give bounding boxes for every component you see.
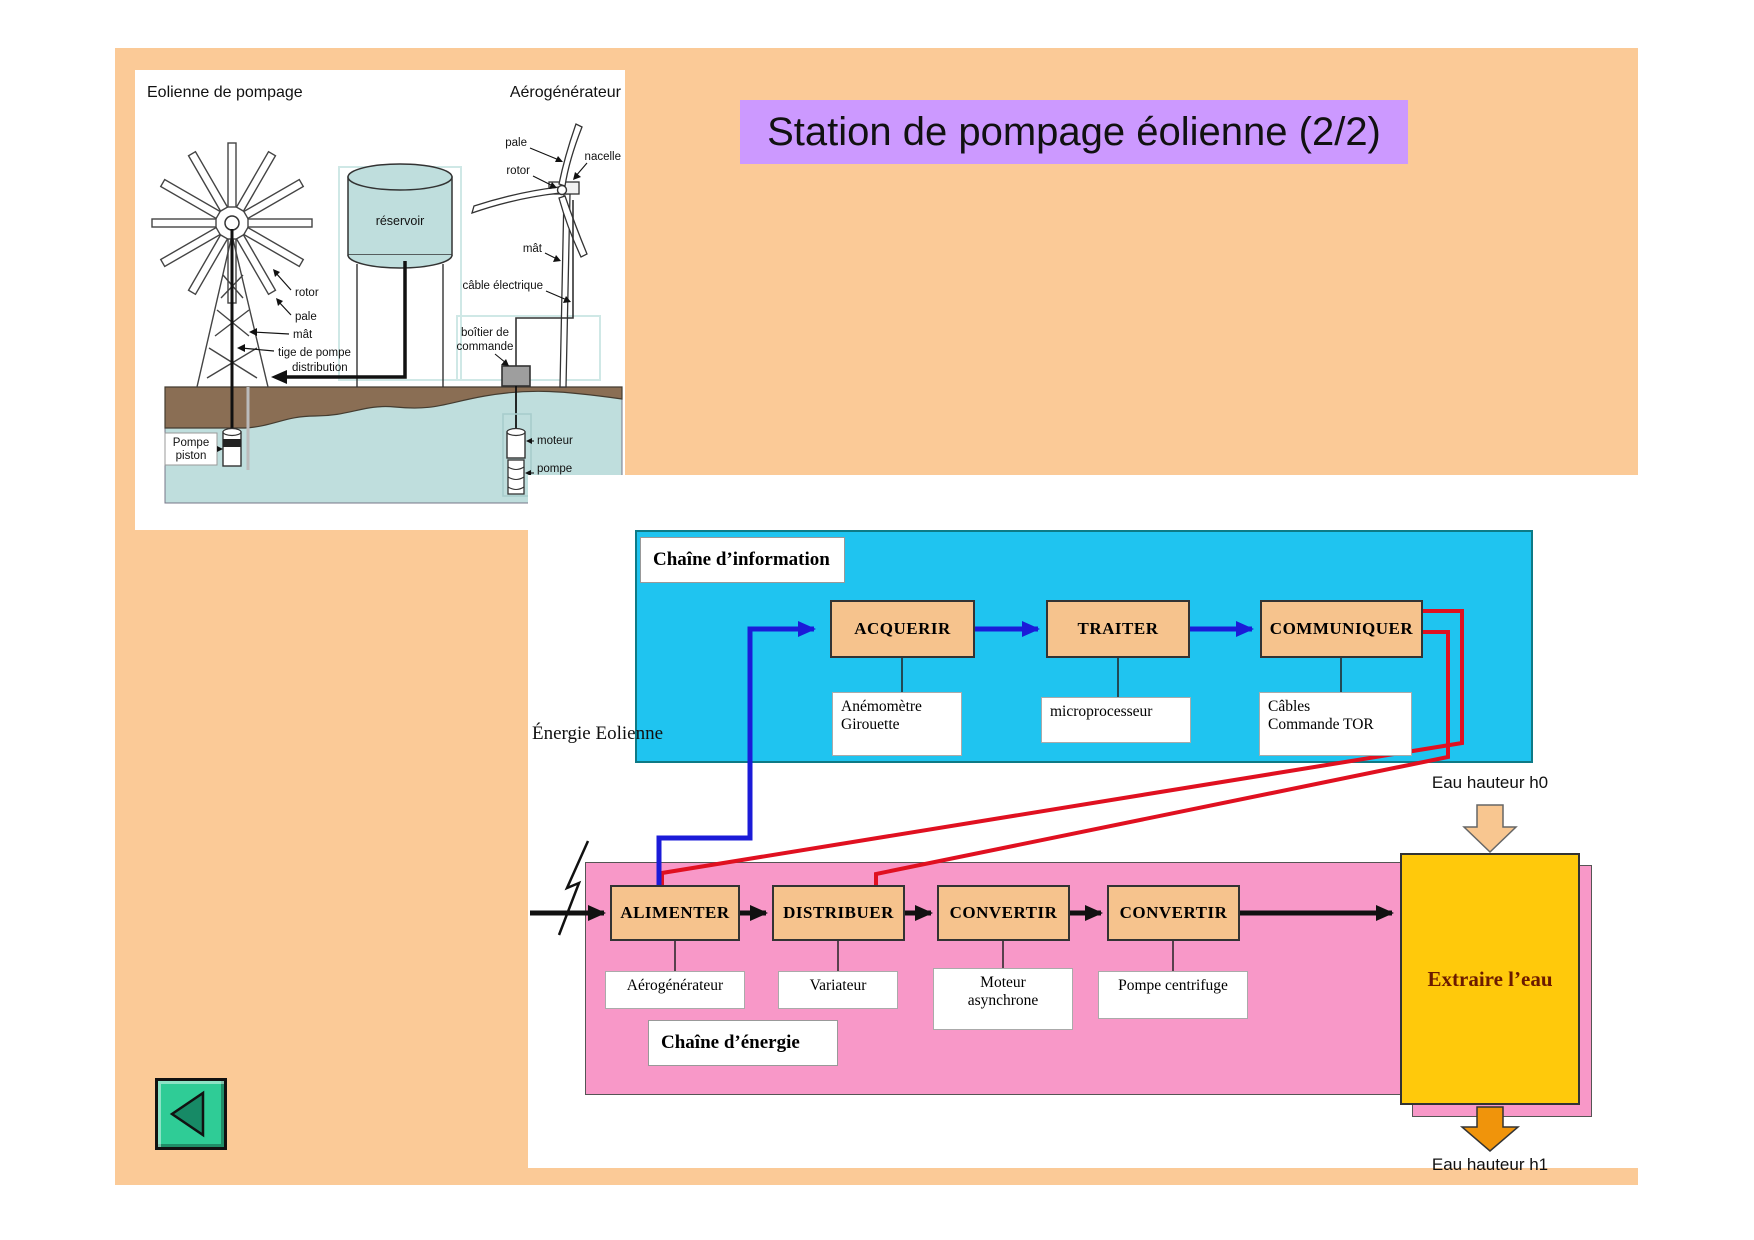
component-pompe-centrifuge: Pompe centrifuge xyxy=(1098,971,1248,1019)
figure-caption-right: Aérogénérateur xyxy=(510,84,622,101)
lightning-icon xyxy=(559,841,588,935)
component-microprocesseur: microprocesseur xyxy=(1041,697,1191,743)
reservoir-label: réservoir xyxy=(376,214,425,228)
centrifugal-pump xyxy=(508,460,524,494)
pump-distribution-label: distribution xyxy=(292,362,348,374)
component-aerogenerateur: Aérogénérateur xyxy=(605,971,745,1009)
signal-line xyxy=(659,629,814,916)
component-anemometre: Anémomètre Girouette xyxy=(832,692,962,756)
water-in-arrow xyxy=(1464,805,1516,852)
component-variateur: Variateur xyxy=(778,971,898,1009)
wind-pump-figure-drawing: Eolienne de pompage Aérogénérateur xyxy=(135,70,625,530)
figure-caption-left: Eolienne de pompage xyxy=(147,84,303,101)
svg-text:piston: piston xyxy=(176,450,207,462)
component-cables: Câbles Commande TOR xyxy=(1259,692,1412,756)
piston-pump-label: Pompe piston xyxy=(165,433,223,465)
component-moteur-asynchrone: Moteur asynchrone xyxy=(933,968,1073,1030)
svg-text:Pompe: Pompe xyxy=(173,437,209,449)
svg-text:commande: commande xyxy=(457,341,514,353)
aero-moteur-label: moteur xyxy=(537,435,573,447)
water-output-label: Eau hauteur h1 xyxy=(1395,1155,1585,1175)
piston-pump xyxy=(223,429,241,467)
water-input-label: Eau hauteur h0 xyxy=(1395,773,1585,793)
output-box-extraire: Extraire l’eau xyxy=(1400,853,1580,1105)
aero-rotor-label: rotor xyxy=(506,165,530,177)
pump-pale-label: pale xyxy=(295,311,317,323)
pump-mat-label: mât xyxy=(293,329,313,341)
slide-title-bar: Station de pompage éolienne (2/2) xyxy=(740,100,1408,164)
process-box-alimenter: ALIMENTER xyxy=(610,885,740,941)
control-box xyxy=(502,366,530,386)
submersible-motor xyxy=(507,429,525,459)
wind-pump-figure: Eolienne de pompage Aérogénérateur xyxy=(135,70,625,530)
water-out-arrow xyxy=(1462,1107,1518,1151)
function-diagram: Chaîne d’information Chaîne d’énergie AC… xyxy=(528,475,1638,1168)
pump-tige-label: tige de pompe xyxy=(278,347,351,359)
aero-pompe-label: pompe xyxy=(537,463,572,475)
aero-cable-label: câble électrique xyxy=(462,280,543,292)
process-box-acquerir: ACQUERIR xyxy=(830,600,975,658)
aero-mat-label: mât xyxy=(523,243,543,255)
process-box-traiter: TRAITER xyxy=(1046,600,1190,658)
process-box-distribuer: DISTRIBUER xyxy=(772,885,905,941)
aero-pale-label: pale xyxy=(505,137,527,149)
back-icon xyxy=(161,1084,221,1144)
distribution-arrowhead xyxy=(271,370,287,384)
page-title: Station de pompage éolienne (2/2) xyxy=(767,110,1381,155)
aero-nacelle-label: nacelle xyxy=(585,151,621,163)
energy-input-label: Énergie Eolienne xyxy=(532,723,712,745)
pump-rotor-label: rotor xyxy=(295,287,319,299)
aero-boitier-label: boîtier de xyxy=(461,327,509,339)
back-button[interactable] xyxy=(155,1078,227,1150)
process-box-communiquer: COMMUNIQUER xyxy=(1260,600,1423,658)
reservoir: réservoir xyxy=(348,164,452,387)
process-box-convertir-2: CONVERTIR xyxy=(1107,885,1240,941)
process-box-convertir-1: CONVERTIR xyxy=(937,885,1070,941)
